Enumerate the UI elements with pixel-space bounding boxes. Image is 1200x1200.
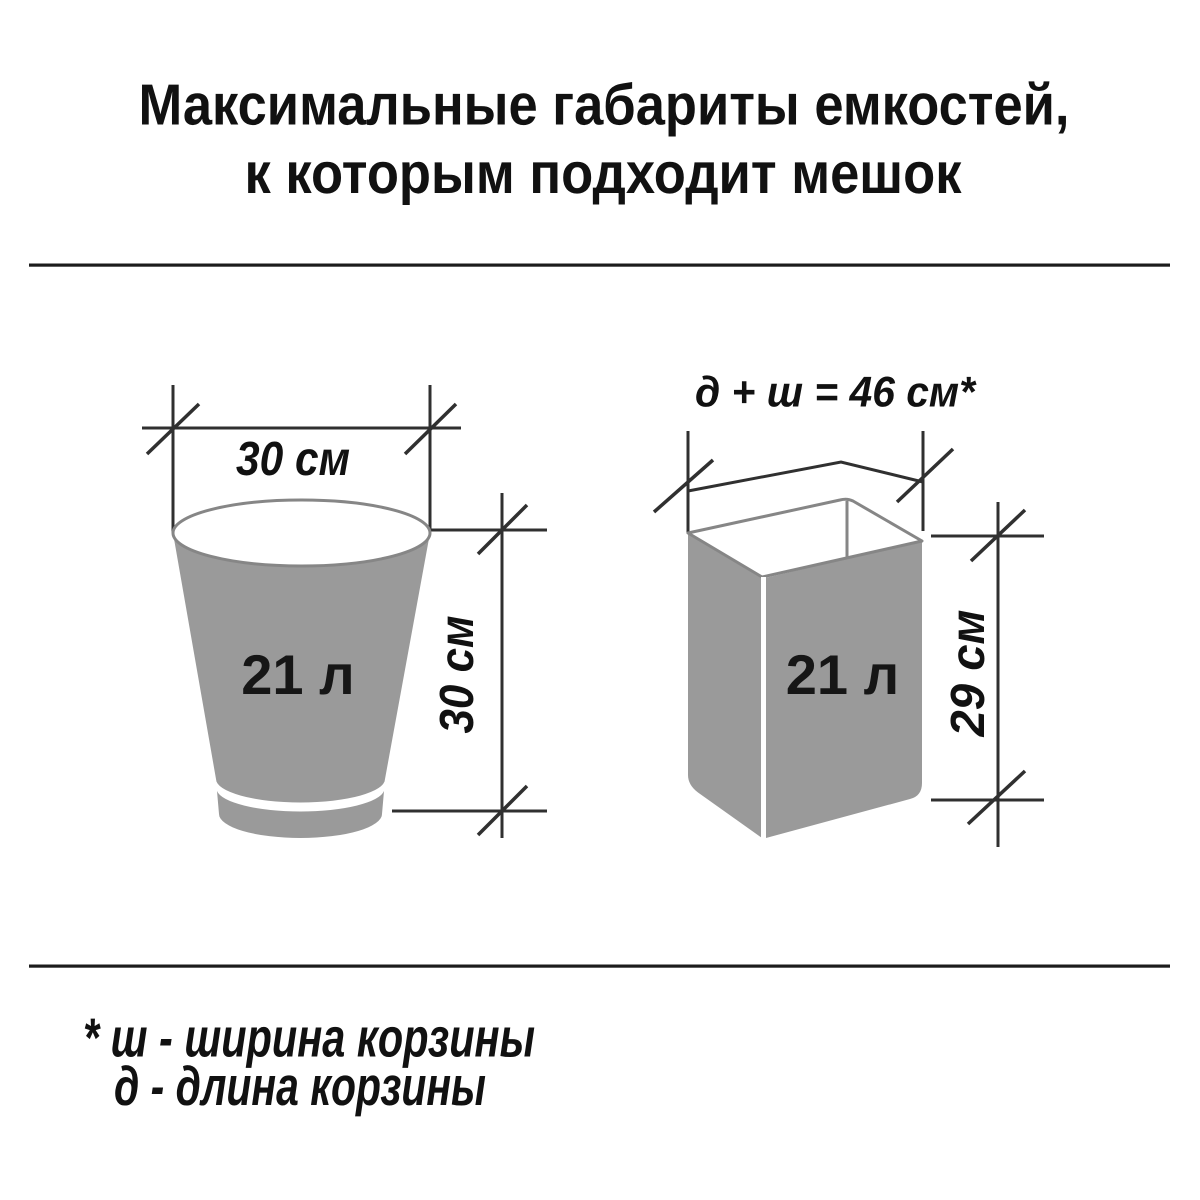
svg-text:д + ш = 46 см*: д + ш = 46 см* [695, 369, 977, 417]
svg-text:29 см: 29 см [942, 610, 995, 738]
svg-text:Максимальные габариты емкостей: Максимальные габариты емкостей, [139, 73, 1070, 138]
svg-text:д - длина корзины: д - длина корзины [114, 1055, 486, 1117]
svg-text:21 л: 21 л [786, 643, 899, 706]
svg-text:30 см: 30 см [431, 616, 484, 734]
svg-text:к которым подходит мешок: к которым подходит мешок [245, 141, 963, 206]
svg-text:21 л: 21 л [241, 643, 354, 706]
svg-text:30 см: 30 см [236, 433, 350, 486]
